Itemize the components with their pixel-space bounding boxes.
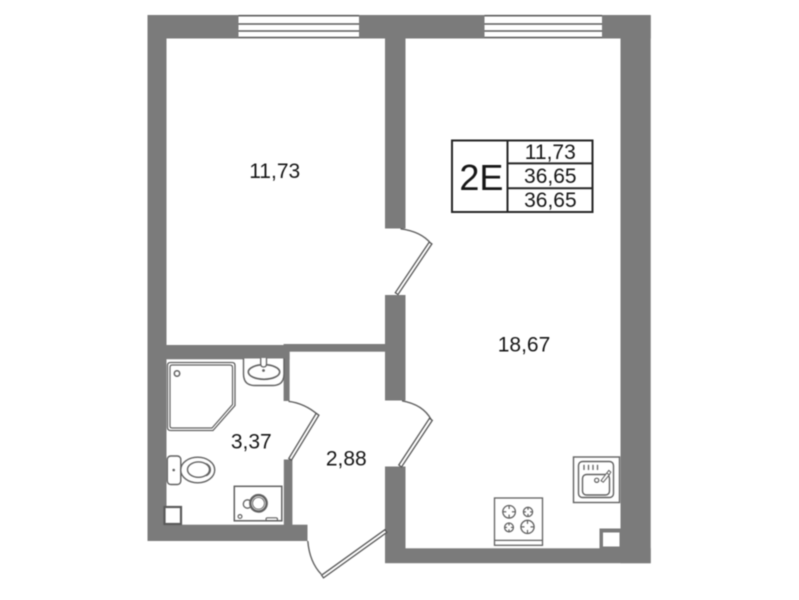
svg-text:2E: 2E [459,157,503,198]
svg-text:11,73: 11,73 [525,141,576,164]
svg-text:18,67: 18,67 [498,333,551,356]
svg-text:2,88: 2,88 [326,447,367,470]
svg-text:11,73: 11,73 [249,160,300,183]
svg-text:36,65: 36,65 [524,189,577,212]
svg-text:36,65: 36,65 [524,165,577,188]
svg-text:3,37: 3,37 [231,430,272,453]
